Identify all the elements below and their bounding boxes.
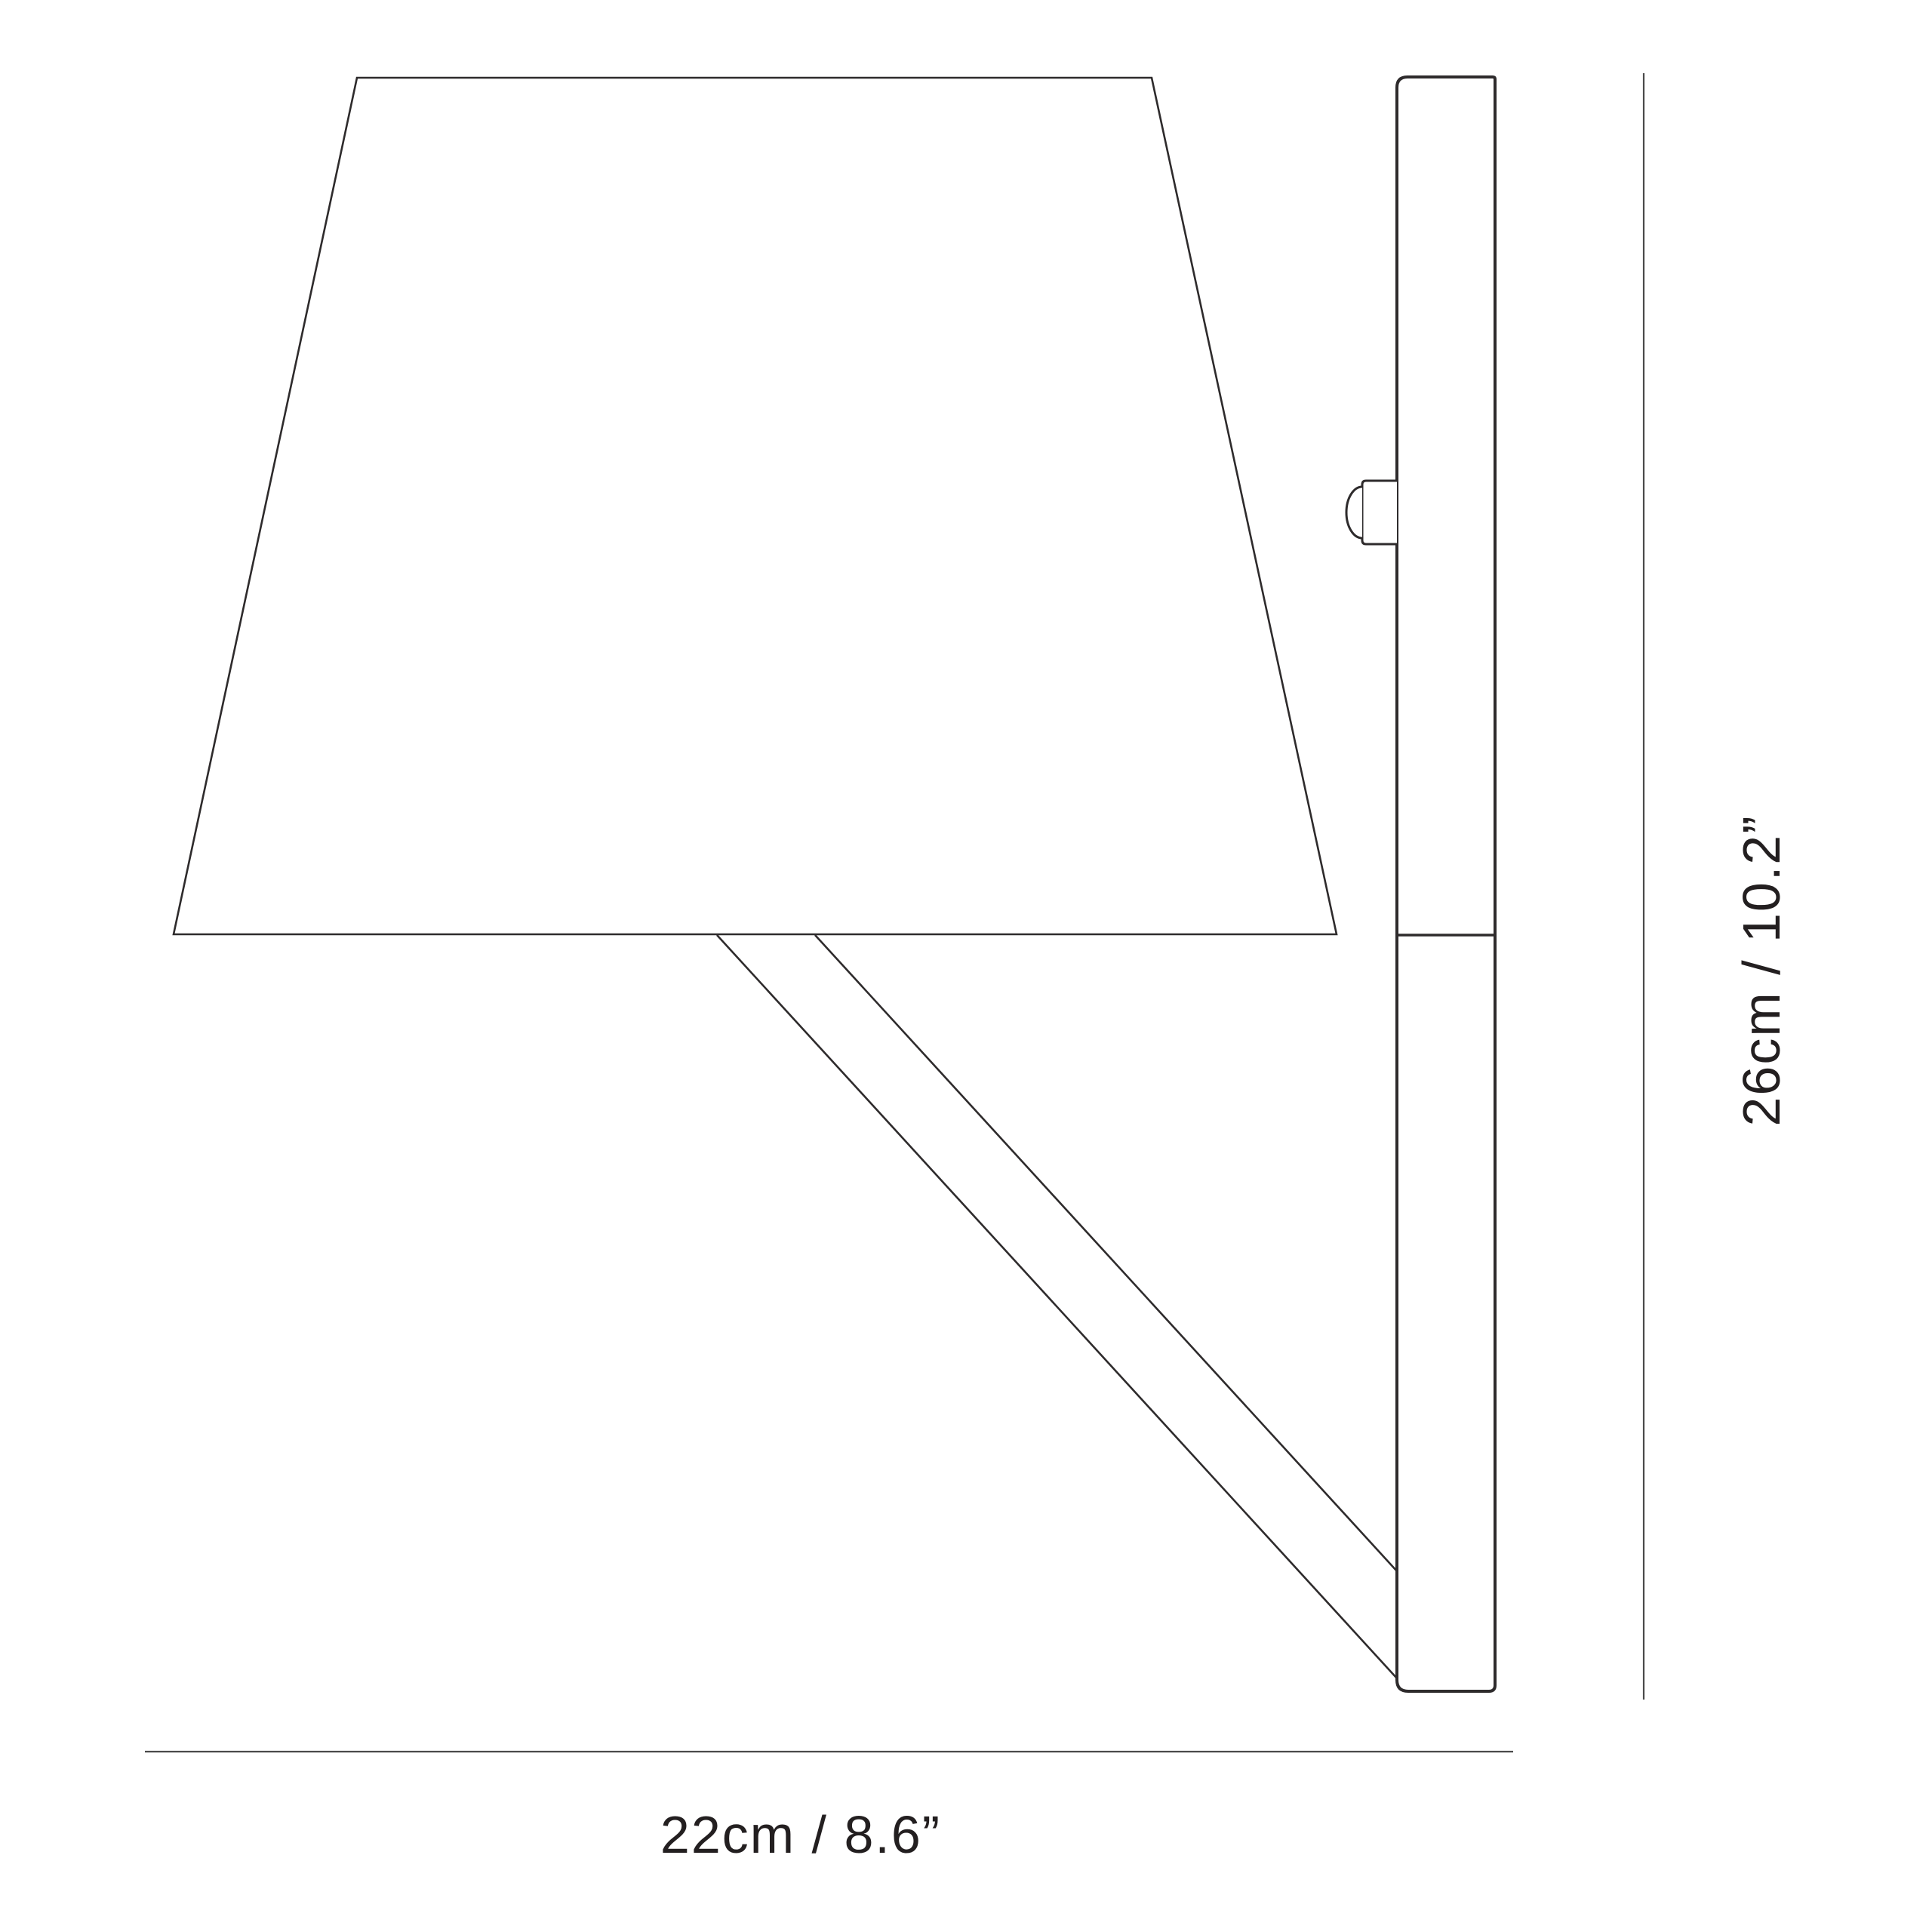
switch-knob-body xyxy=(1362,481,1397,544)
lamp-dimension-diagram: 22cm / 8.6” 26cm / 10.2” xyxy=(0,0,1932,1932)
switch-knob-cap xyxy=(1346,487,1362,538)
diagram-canvas: 22cm / 8.6” 26cm / 10.2” xyxy=(0,0,1932,1932)
support-arm-upper-edge xyxy=(815,935,1398,1572)
lampshade-outline xyxy=(174,78,1337,934)
width-dimension-label: 22cm / 8.6” xyxy=(660,1805,941,1864)
support-arm-lower-edge xyxy=(717,935,1398,1679)
height-dimension-label: 26cm / 10.2” xyxy=(1732,814,1791,1126)
wall-plate xyxy=(1397,77,1495,1691)
